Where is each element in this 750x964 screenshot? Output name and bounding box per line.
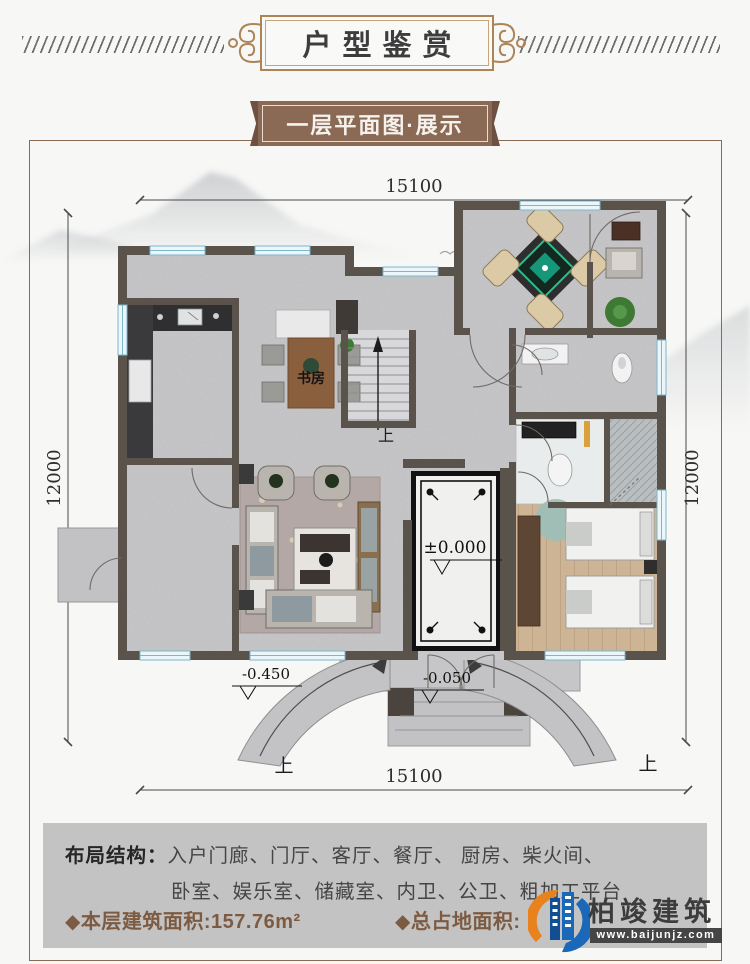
floor-plan-drawing: 15100 15100 12000 12000 [0, 0, 750, 964]
ramp-up-right-label: 上 [638, 753, 657, 775]
dim-bottom: 15100 [385, 766, 442, 787]
ramp-up-left-label: 上 [274, 755, 293, 777]
total-area-text: ◆总占地面积: [395, 905, 521, 934]
builder-logo-icon [528, 884, 590, 956]
layout-structure-line1: 布局结构：入户门廊、门厅、客厅、餐厅、 厨房、柴火间、 [65, 839, 604, 868]
layout-structure-label: 布局结构： [65, 845, 168, 867]
room-label-study: 书房 [297, 370, 325, 386]
dim-top: 15100 [385, 176, 442, 197]
side-platform [58, 528, 122, 602]
stairs-up-label: 上 [378, 426, 394, 445]
svg-text:±0.000: ±0.000 [424, 538, 487, 558]
living-room-furniture [236, 464, 380, 633]
brand-website: www.baijunjz.com [590, 928, 722, 943]
brand-logo: 柏竣建筑 www.baijunjz.com [528, 882, 724, 958]
brand-name: 柏竣建筑 [588, 890, 716, 929]
poster-page: { "title": { "text": "户型鉴赏" }, "subtitle… [0, 0, 750, 964]
dim-left: 12000 [44, 449, 65, 506]
entry-rug [411, 471, 501, 651]
floor-area-text: ◆本层建筑面积:157.76m² [65, 905, 301, 934]
layout-structure-rooms1: 入户门廊、门厅、客厅、餐厅、 厨房、柴火间、 [168, 845, 605, 867]
svg-text:-0.450: -0.450 [242, 665, 290, 683]
shower-floor [606, 419, 660, 504]
svg-text:-0.050: -0.050 [423, 669, 471, 687]
dim-right: 12000 [682, 449, 703, 506]
